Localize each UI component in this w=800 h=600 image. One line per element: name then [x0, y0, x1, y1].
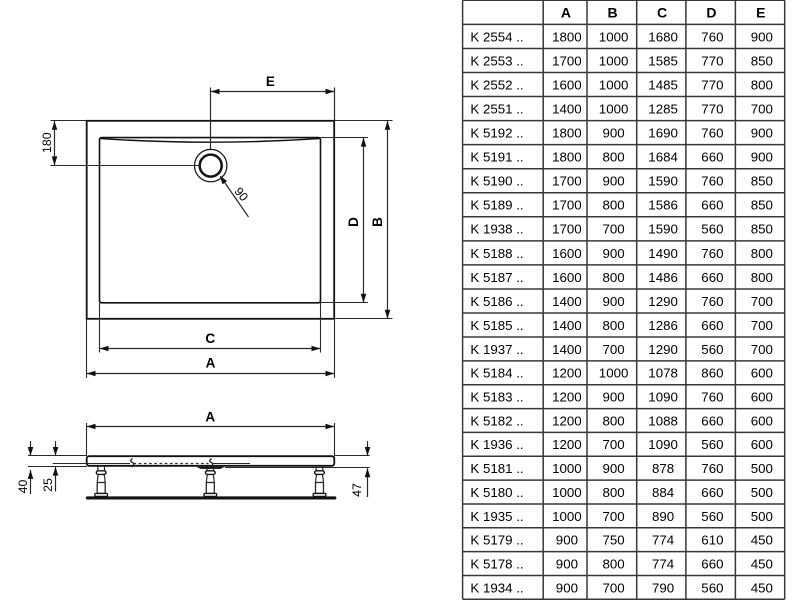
svg-text:K 5192 ..: K 5192 .. [470, 126, 523, 141]
svg-text:560: 560 [701, 509, 723, 524]
svg-text:900: 900 [556, 556, 578, 571]
svg-text:884: 884 [652, 485, 674, 500]
svg-text:1000: 1000 [552, 485, 582, 500]
svg-text:890: 890 [652, 509, 674, 524]
svg-text:660: 660 [701, 556, 723, 571]
svg-text:450: 450 [751, 533, 773, 548]
svg-text:900: 900 [556, 533, 578, 548]
svg-text:900: 900 [603, 246, 625, 261]
svg-text:K 2551 ..: K 2551 .. [470, 102, 523, 117]
svg-text:1400: 1400 [552, 342, 582, 357]
svg-text:1600: 1600 [552, 246, 582, 261]
svg-text:900: 900 [751, 126, 773, 141]
svg-text:K 5191 ..: K 5191 .. [470, 150, 523, 165]
svg-text:900: 900 [603, 126, 625, 141]
svg-text:1600: 1600 [552, 77, 582, 92]
svg-text:1000: 1000 [552, 509, 582, 524]
svg-text:560: 560 [701, 580, 723, 595]
svg-text:800: 800 [603, 556, 625, 571]
svg-text:900: 900 [603, 174, 625, 189]
svg-text:1090: 1090 [648, 437, 678, 452]
svg-text:700: 700 [603, 222, 625, 237]
svg-text:700: 700 [603, 580, 625, 595]
svg-text:860: 860 [701, 366, 723, 381]
svg-text:1490: 1490 [648, 246, 678, 261]
svg-text:450: 450 [751, 556, 773, 571]
svg-text:K 5188 ..: K 5188 .. [470, 246, 523, 261]
svg-text:1800: 1800 [552, 150, 582, 165]
svg-text:850: 850 [751, 174, 773, 189]
svg-text:600: 600 [751, 413, 773, 428]
svg-text:700: 700 [603, 437, 625, 452]
svg-text:1586: 1586 [648, 198, 678, 213]
svg-text:800: 800 [603, 270, 625, 285]
svg-text:660: 660 [701, 413, 723, 428]
svg-text:1000: 1000 [599, 53, 629, 68]
svg-text:B: B [608, 5, 618, 21]
svg-text:800: 800 [603, 198, 625, 213]
svg-text:1700: 1700 [552, 174, 582, 189]
svg-text:1486: 1486 [648, 270, 678, 285]
svg-text:K 5185 ..: K 5185 .. [470, 318, 523, 333]
svg-text:A: A [206, 356, 216, 371]
svg-text:1600: 1600 [552, 270, 582, 285]
svg-text:560: 560 [701, 222, 723, 237]
svg-text:700: 700 [751, 102, 773, 117]
svg-text:700: 700 [751, 318, 773, 333]
svg-text:660: 660 [701, 318, 723, 333]
svg-text:K 1935 ..: K 1935 .. [470, 509, 523, 524]
svg-text:760: 760 [701, 174, 723, 189]
svg-text:850: 850 [751, 198, 773, 213]
svg-text:K 5182 ..: K 5182 .. [470, 413, 523, 428]
svg-text:770: 770 [701, 53, 723, 68]
svg-text:900: 900 [603, 294, 625, 309]
svg-text:774: 774 [652, 556, 674, 571]
svg-text:1590: 1590 [648, 174, 678, 189]
svg-text:1000: 1000 [599, 366, 629, 381]
svg-text:K 2553 ..: K 2553 .. [470, 53, 523, 68]
svg-text:800: 800 [603, 318, 625, 333]
svg-text:K 5183 ..: K 5183 .. [470, 390, 523, 405]
svg-text:1200: 1200 [552, 366, 582, 381]
svg-text:900: 900 [751, 29, 773, 44]
svg-text:450: 450 [751, 580, 773, 595]
svg-text:1400: 1400 [552, 318, 582, 333]
svg-text:1400: 1400 [552, 102, 582, 117]
svg-text:800: 800 [751, 77, 773, 92]
svg-text:878: 878 [652, 461, 674, 476]
svg-text:1800: 1800 [552, 29, 582, 44]
svg-text:A: A [205, 409, 215, 424]
svg-text:E: E [756, 5, 765, 21]
svg-text:770: 770 [701, 102, 723, 117]
svg-text:K 5178 ..: K 5178 .. [470, 556, 523, 571]
svg-text:560: 560 [701, 342, 723, 357]
svg-text:800: 800 [751, 246, 773, 261]
svg-text:700: 700 [603, 342, 625, 357]
svg-text:700: 700 [603, 509, 625, 524]
svg-text:850: 850 [751, 53, 773, 68]
svg-text:500: 500 [751, 485, 773, 500]
svg-text:800: 800 [603, 413, 625, 428]
svg-text:C: C [205, 331, 215, 346]
svg-text:700: 700 [751, 342, 773, 357]
svg-text:1400: 1400 [552, 294, 582, 309]
svg-text:1285: 1285 [648, 102, 678, 117]
svg-text:D: D [706, 5, 716, 21]
svg-text:900: 900 [751, 150, 773, 165]
svg-text:1800: 1800 [552, 126, 582, 141]
svg-text:700: 700 [751, 294, 773, 309]
svg-text:900: 900 [556, 580, 578, 595]
svg-text:1590: 1590 [648, 222, 678, 237]
svg-text:774: 774 [652, 533, 674, 548]
svg-text:B: B [370, 217, 385, 227]
svg-text:40: 40 [16, 480, 30, 494]
svg-text:1585: 1585 [648, 53, 678, 68]
svg-text:1700: 1700 [552, 198, 582, 213]
svg-text:K 1937 ..: K 1937 .. [470, 342, 523, 357]
svg-text:760: 760 [701, 126, 723, 141]
svg-text:1485: 1485 [648, 77, 678, 92]
svg-text:1684: 1684 [648, 150, 678, 165]
svg-text:800: 800 [751, 270, 773, 285]
svg-text:K 2552 ..: K 2552 .. [470, 77, 523, 92]
svg-text:1088: 1088 [648, 413, 678, 428]
svg-text:1200: 1200 [552, 437, 582, 452]
svg-text:1000: 1000 [599, 102, 629, 117]
svg-text:1290: 1290 [648, 294, 678, 309]
svg-text:1690: 1690 [648, 126, 678, 141]
svg-text:750: 750 [603, 533, 625, 548]
svg-text:660: 660 [701, 150, 723, 165]
svg-text:770: 770 [701, 77, 723, 92]
svg-text:1078: 1078 [648, 366, 678, 381]
svg-text:D: D [346, 217, 361, 227]
svg-text:1680: 1680 [648, 29, 678, 44]
svg-text:K 2554 ..: K 2554 .. [470, 29, 523, 44]
svg-text:500: 500 [751, 509, 773, 524]
svg-text:1200: 1200 [552, 390, 582, 405]
svg-text:560: 560 [701, 437, 723, 452]
svg-text:1290: 1290 [648, 342, 678, 357]
svg-text:K 5189 ..: K 5189 .. [470, 198, 523, 213]
svg-text:K 5181 ..: K 5181 .. [470, 461, 523, 476]
svg-text:K 5186 ..: K 5186 .. [470, 294, 523, 309]
svg-text:600: 600 [751, 437, 773, 452]
svg-text:47: 47 [350, 483, 364, 497]
svg-text:K 1938 ..: K 1938 .. [470, 222, 523, 237]
svg-text:500: 500 [751, 461, 773, 476]
svg-text:1286: 1286 [648, 318, 678, 333]
svg-text:1200: 1200 [552, 413, 582, 428]
svg-text:760: 760 [701, 390, 723, 405]
svg-text:1700: 1700 [552, 53, 582, 68]
svg-text:K 5180 ..: K 5180 .. [470, 485, 523, 500]
svg-text:K 5179 ..: K 5179 .. [470, 533, 523, 548]
svg-text:760: 760 [701, 246, 723, 261]
svg-text:K 5184 ..: K 5184 .. [470, 366, 523, 381]
svg-text:K 5187 ..: K 5187 .. [470, 270, 523, 285]
svg-text:180: 180 [40, 132, 54, 153]
svg-text:K 5190 ..: K 5190 .. [470, 174, 523, 189]
svg-text:660: 660 [701, 198, 723, 213]
svg-text:790: 790 [652, 580, 674, 595]
svg-text:800: 800 [603, 485, 625, 500]
svg-text:K 1934 ..: K 1934 .. [470, 580, 523, 595]
svg-text:600: 600 [751, 366, 773, 381]
svg-text:25: 25 [41, 478, 55, 492]
svg-text:1000: 1000 [599, 77, 629, 92]
svg-text:600: 600 [751, 390, 773, 405]
svg-text:K 1936 ..: K 1936 .. [470, 437, 523, 452]
svg-text:1000: 1000 [599, 29, 629, 44]
svg-text:90: 90 [231, 185, 251, 205]
svg-text:760: 760 [701, 29, 723, 44]
svg-text:1700: 1700 [552, 222, 582, 237]
svg-text:760: 760 [701, 461, 723, 476]
svg-text:900: 900 [603, 461, 625, 476]
svg-text:660: 660 [701, 485, 723, 500]
svg-text:1000: 1000 [552, 461, 582, 476]
svg-text:660: 660 [701, 270, 723, 285]
svg-text:760: 760 [701, 294, 723, 309]
svg-text:850: 850 [751, 222, 773, 237]
svg-text:1090: 1090 [648, 390, 678, 405]
svg-text:610: 610 [701, 533, 723, 548]
svg-text:A: A [561, 5, 571, 21]
svg-text:900: 900 [603, 390, 625, 405]
svg-text:800: 800 [603, 150, 625, 165]
svg-text:E: E [266, 74, 275, 89]
svg-text:C: C [657, 5, 667, 21]
